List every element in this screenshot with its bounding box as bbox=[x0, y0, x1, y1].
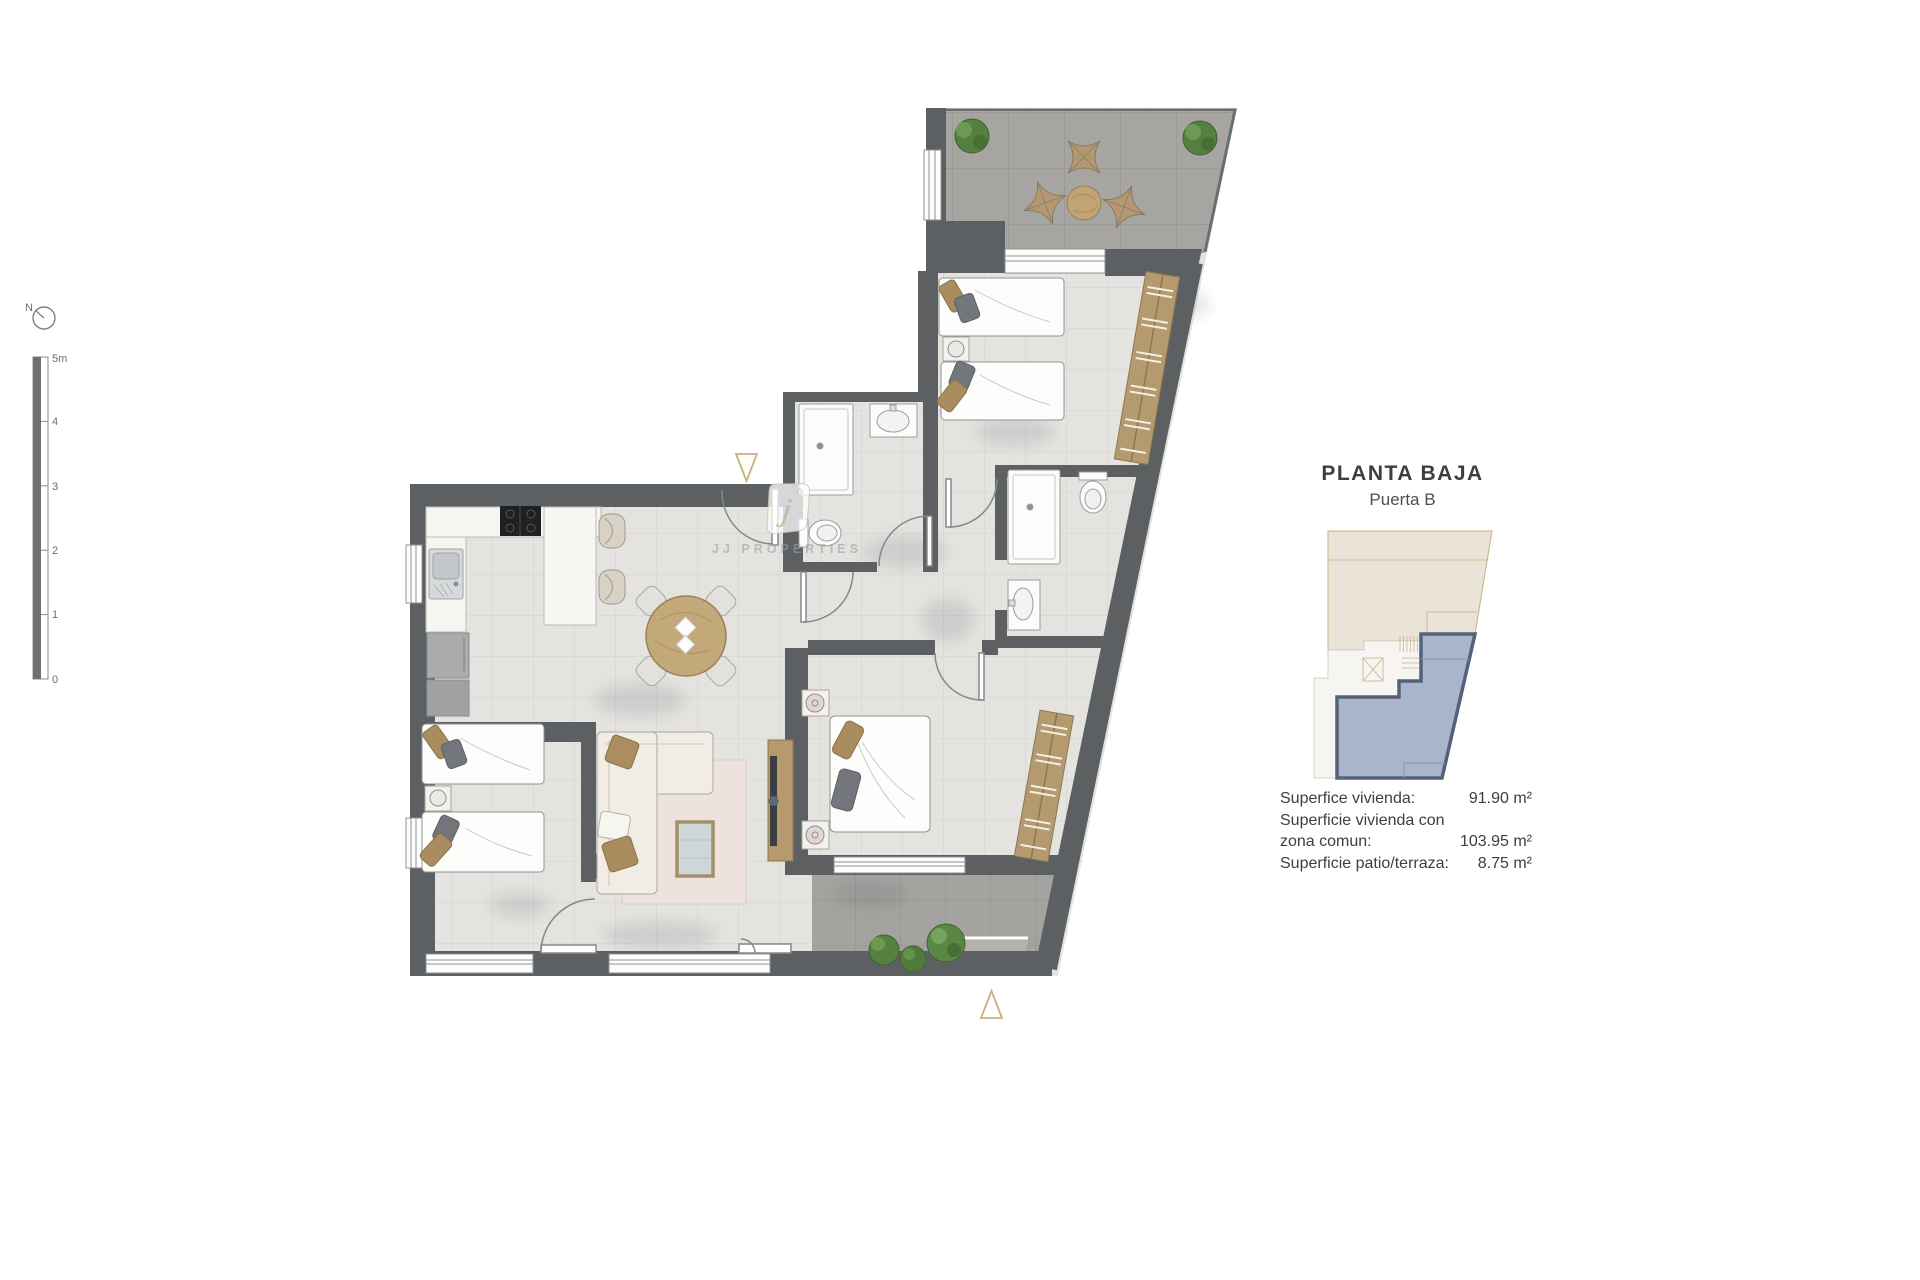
area-line: Superfice vivienda: 91.90 m² bbox=[1280, 788, 1532, 810]
area-line: zona comun: 103.95 m² bbox=[1280, 831, 1532, 853]
lamp-icon bbox=[806, 694, 824, 712]
shower bbox=[1008, 470, 1060, 564]
scale-label: 1 bbox=[52, 609, 58, 621]
lamp-icon bbox=[806, 826, 824, 844]
fridge-icon bbox=[427, 633, 469, 716]
kitchen-island bbox=[544, 507, 596, 625]
floor-plan-page: j JJ PROPERTIES N 5m 4 3 2 1 0 bbox=[0, 0, 1920, 1280]
window-terrace-left bbox=[924, 150, 941, 220]
toilet bbox=[1079, 472, 1107, 513]
window-bedroom2-top bbox=[1005, 249, 1105, 273]
terrace-table bbox=[1067, 186, 1101, 220]
watermark-text: JJ PROPERTIES bbox=[712, 542, 862, 556]
single-bed bbox=[421, 724, 544, 784]
scale-label: 2 bbox=[52, 545, 58, 557]
window-main-bedroom-bottom bbox=[834, 857, 965, 873]
window-bedroom3-left bbox=[406, 818, 422, 868]
compass: N bbox=[25, 302, 55, 329]
scale-label: 5m bbox=[52, 353, 67, 365]
window-bedroom3-bottom bbox=[426, 954, 533, 973]
scale-bar: 5m 4 3 2 1 0 bbox=[33, 353, 67, 686]
plant-icon bbox=[927, 924, 965, 962]
page-title: PLANTA BAJA bbox=[1295, 462, 1510, 486]
single-bed bbox=[936, 360, 1064, 420]
minimap-building bbox=[1328, 531, 1492, 650]
plant-icon bbox=[900, 946, 926, 972]
lamp-icon bbox=[430, 790, 446, 806]
section-marker-bottom-icon bbox=[981, 991, 1002, 1018]
scale-label: 4 bbox=[52, 416, 58, 428]
plant-icon bbox=[869, 935, 899, 965]
area-value: 91.90 m² bbox=[1469, 788, 1532, 810]
shower bbox=[799, 404, 853, 495]
scale-label: 3 bbox=[52, 481, 58, 493]
coffee-table bbox=[677, 822, 713, 876]
area-label: Superficie vivienda con bbox=[1280, 810, 1532, 832]
butterfly-chair bbox=[1068, 141, 1100, 173]
island-stool bbox=[599, 570, 625, 604]
window-living-bottom bbox=[609, 954, 770, 973]
unit-location-minimap bbox=[1314, 531, 1492, 778]
lamp-icon bbox=[948, 341, 964, 357]
cooktop-icon bbox=[500, 506, 541, 536]
shower-drain bbox=[1027, 504, 1033, 510]
double-bed bbox=[830, 716, 930, 832]
plant-icon bbox=[955, 119, 989, 153]
island-stool bbox=[599, 514, 625, 548]
section-marker-top-icon bbox=[736, 454, 757, 481]
page-subtitle: Puerta B bbox=[1295, 490, 1510, 510]
area-label: Superfice vivienda: bbox=[1280, 788, 1469, 810]
single-bed bbox=[938, 278, 1064, 336]
area-value: 8.75 m² bbox=[1478, 853, 1532, 875]
washbasin bbox=[1008, 580, 1040, 630]
area-line: Superficie patio/terraza: 8.75 m² bbox=[1280, 853, 1532, 875]
compass-label: N bbox=[25, 302, 33, 314]
single-bed bbox=[419, 812, 544, 872]
washbasin bbox=[870, 404, 917, 437]
plant-icon bbox=[1183, 121, 1217, 155]
window-kitchen-left bbox=[406, 545, 422, 603]
area-line: Superficie vivienda con bbox=[1280, 810, 1532, 832]
area-label: zona comun: bbox=[1280, 831, 1460, 853]
area-value: 103.95 m² bbox=[1460, 831, 1532, 853]
sink-icon bbox=[429, 549, 463, 599]
tv-unit bbox=[768, 740, 793, 861]
area-label: Superficie patio/terraza: bbox=[1280, 853, 1478, 875]
scale-label: 0 bbox=[52, 674, 58, 686]
area-summary: Superfice vivienda: 91.90 m² Superficie … bbox=[1280, 788, 1532, 874]
shower-drain bbox=[817, 443, 823, 449]
dining-area bbox=[633, 583, 738, 688]
floor-plan-image: j JJ PROPERTIES N 5m 4 3 2 1 0 bbox=[0, 0, 1920, 1280]
